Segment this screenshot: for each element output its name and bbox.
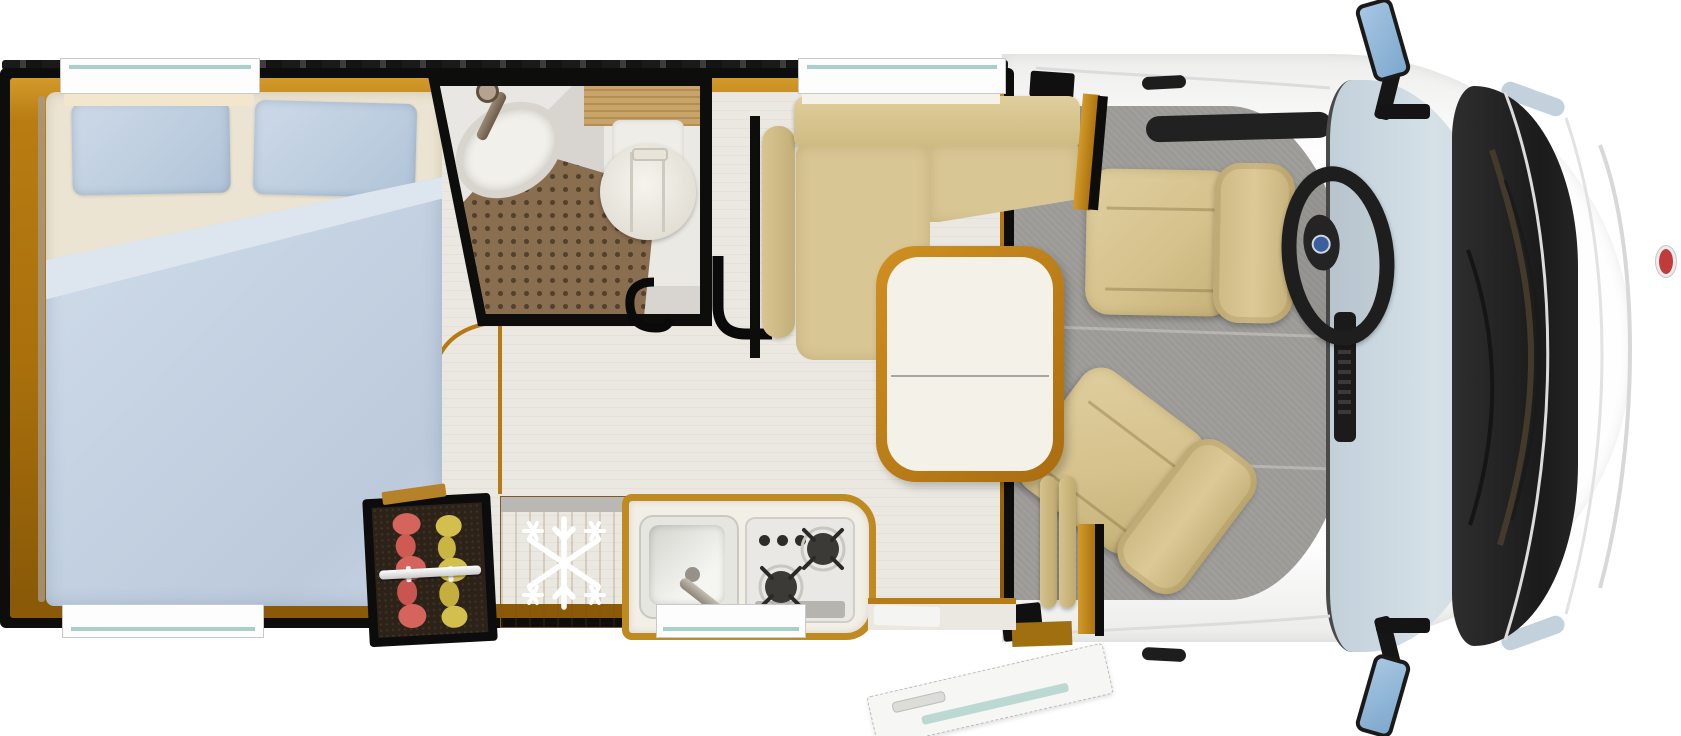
- pillar-cushion: [1059, 476, 1076, 608]
- console-vents: [1338, 340, 1351, 414]
- toilet-hinge: [632, 148, 668, 161]
- bed-headboard-edge: [38, 96, 45, 602]
- entry-doorway: [868, 598, 1016, 630]
- entry-step: [1012, 621, 1073, 647]
- toilet: [600, 144, 696, 240]
- bathroom: [424, 74, 712, 332]
- open-entry-door: [866, 643, 1113, 736]
- window-sill: [802, 94, 1000, 104]
- wardrobe: [362, 493, 498, 647]
- entry-partition-edge: [1095, 524, 1104, 636]
- burner-icon: [795, 521, 851, 577]
- driver-seat: [1085, 160, 1296, 324]
- stove-knob: [759, 535, 770, 546]
- wiper-cowl: [1452, 86, 1578, 646]
- window-sill: [64, 94, 254, 106]
- motorhome-floorplan: [0, 0, 1681, 736]
- stove-knob: [777, 535, 788, 546]
- pillow-left: [71, 101, 231, 196]
- mirror-base: [1376, 618, 1430, 633]
- window-glass-line: [807, 65, 997, 69]
- window-kitchen-bottom: [656, 604, 806, 638]
- window-dinette-top: [798, 58, 1006, 94]
- toilet-lid-seam: [630, 152, 633, 232]
- sofa-backrest: [794, 96, 1080, 150]
- table-leaf-seam: [891, 375, 1049, 377]
- toilet-lid-seam: [662, 152, 665, 232]
- sofa-armrest: [762, 126, 795, 338]
- side-mirror-right: [1348, 614, 1426, 736]
- mirror-base: [1376, 104, 1430, 119]
- entry-threshold: [868, 598, 1016, 604]
- window-bedroom-bottom: [62, 604, 264, 638]
- dinette-table: [876, 246, 1064, 482]
- sofa-side-wall: [750, 116, 760, 358]
- dashboard-strip: [1146, 112, 1333, 143]
- window-glass-line: [71, 627, 255, 631]
- window-glass-line: [663, 627, 799, 631]
- entry-step-plate: [874, 605, 941, 627]
- front-grille-badge: [1656, 246, 1676, 277]
- mirror-glass: [1354, 652, 1413, 736]
- entry-door-window: [921, 683, 1069, 726]
- side-mirror-left: [1348, 0, 1426, 122]
- window-glass-line: [69, 65, 251, 69]
- window-bedroom-top: [60, 58, 260, 94]
- cab-door-handle-left: [1142, 75, 1187, 90]
- seat-stitching: [1105, 207, 1214, 293]
- fridge-top-edge: [501, 497, 627, 512]
- kitchen-sink-basin: [649, 525, 725, 605]
- cab-door-handle-right: [1142, 647, 1187, 662]
- entry-door-handle: [891, 691, 946, 714]
- snowflake-icon: [518, 515, 610, 611]
- pillow-right: [253, 100, 417, 198]
- mirror-glass: [1354, 0, 1413, 84]
- pillar-cushion: [1040, 476, 1057, 608]
- table-top: [887, 257, 1053, 471]
- fridge: [500, 496, 628, 628]
- bathroom-floor: [424, 74, 712, 332]
